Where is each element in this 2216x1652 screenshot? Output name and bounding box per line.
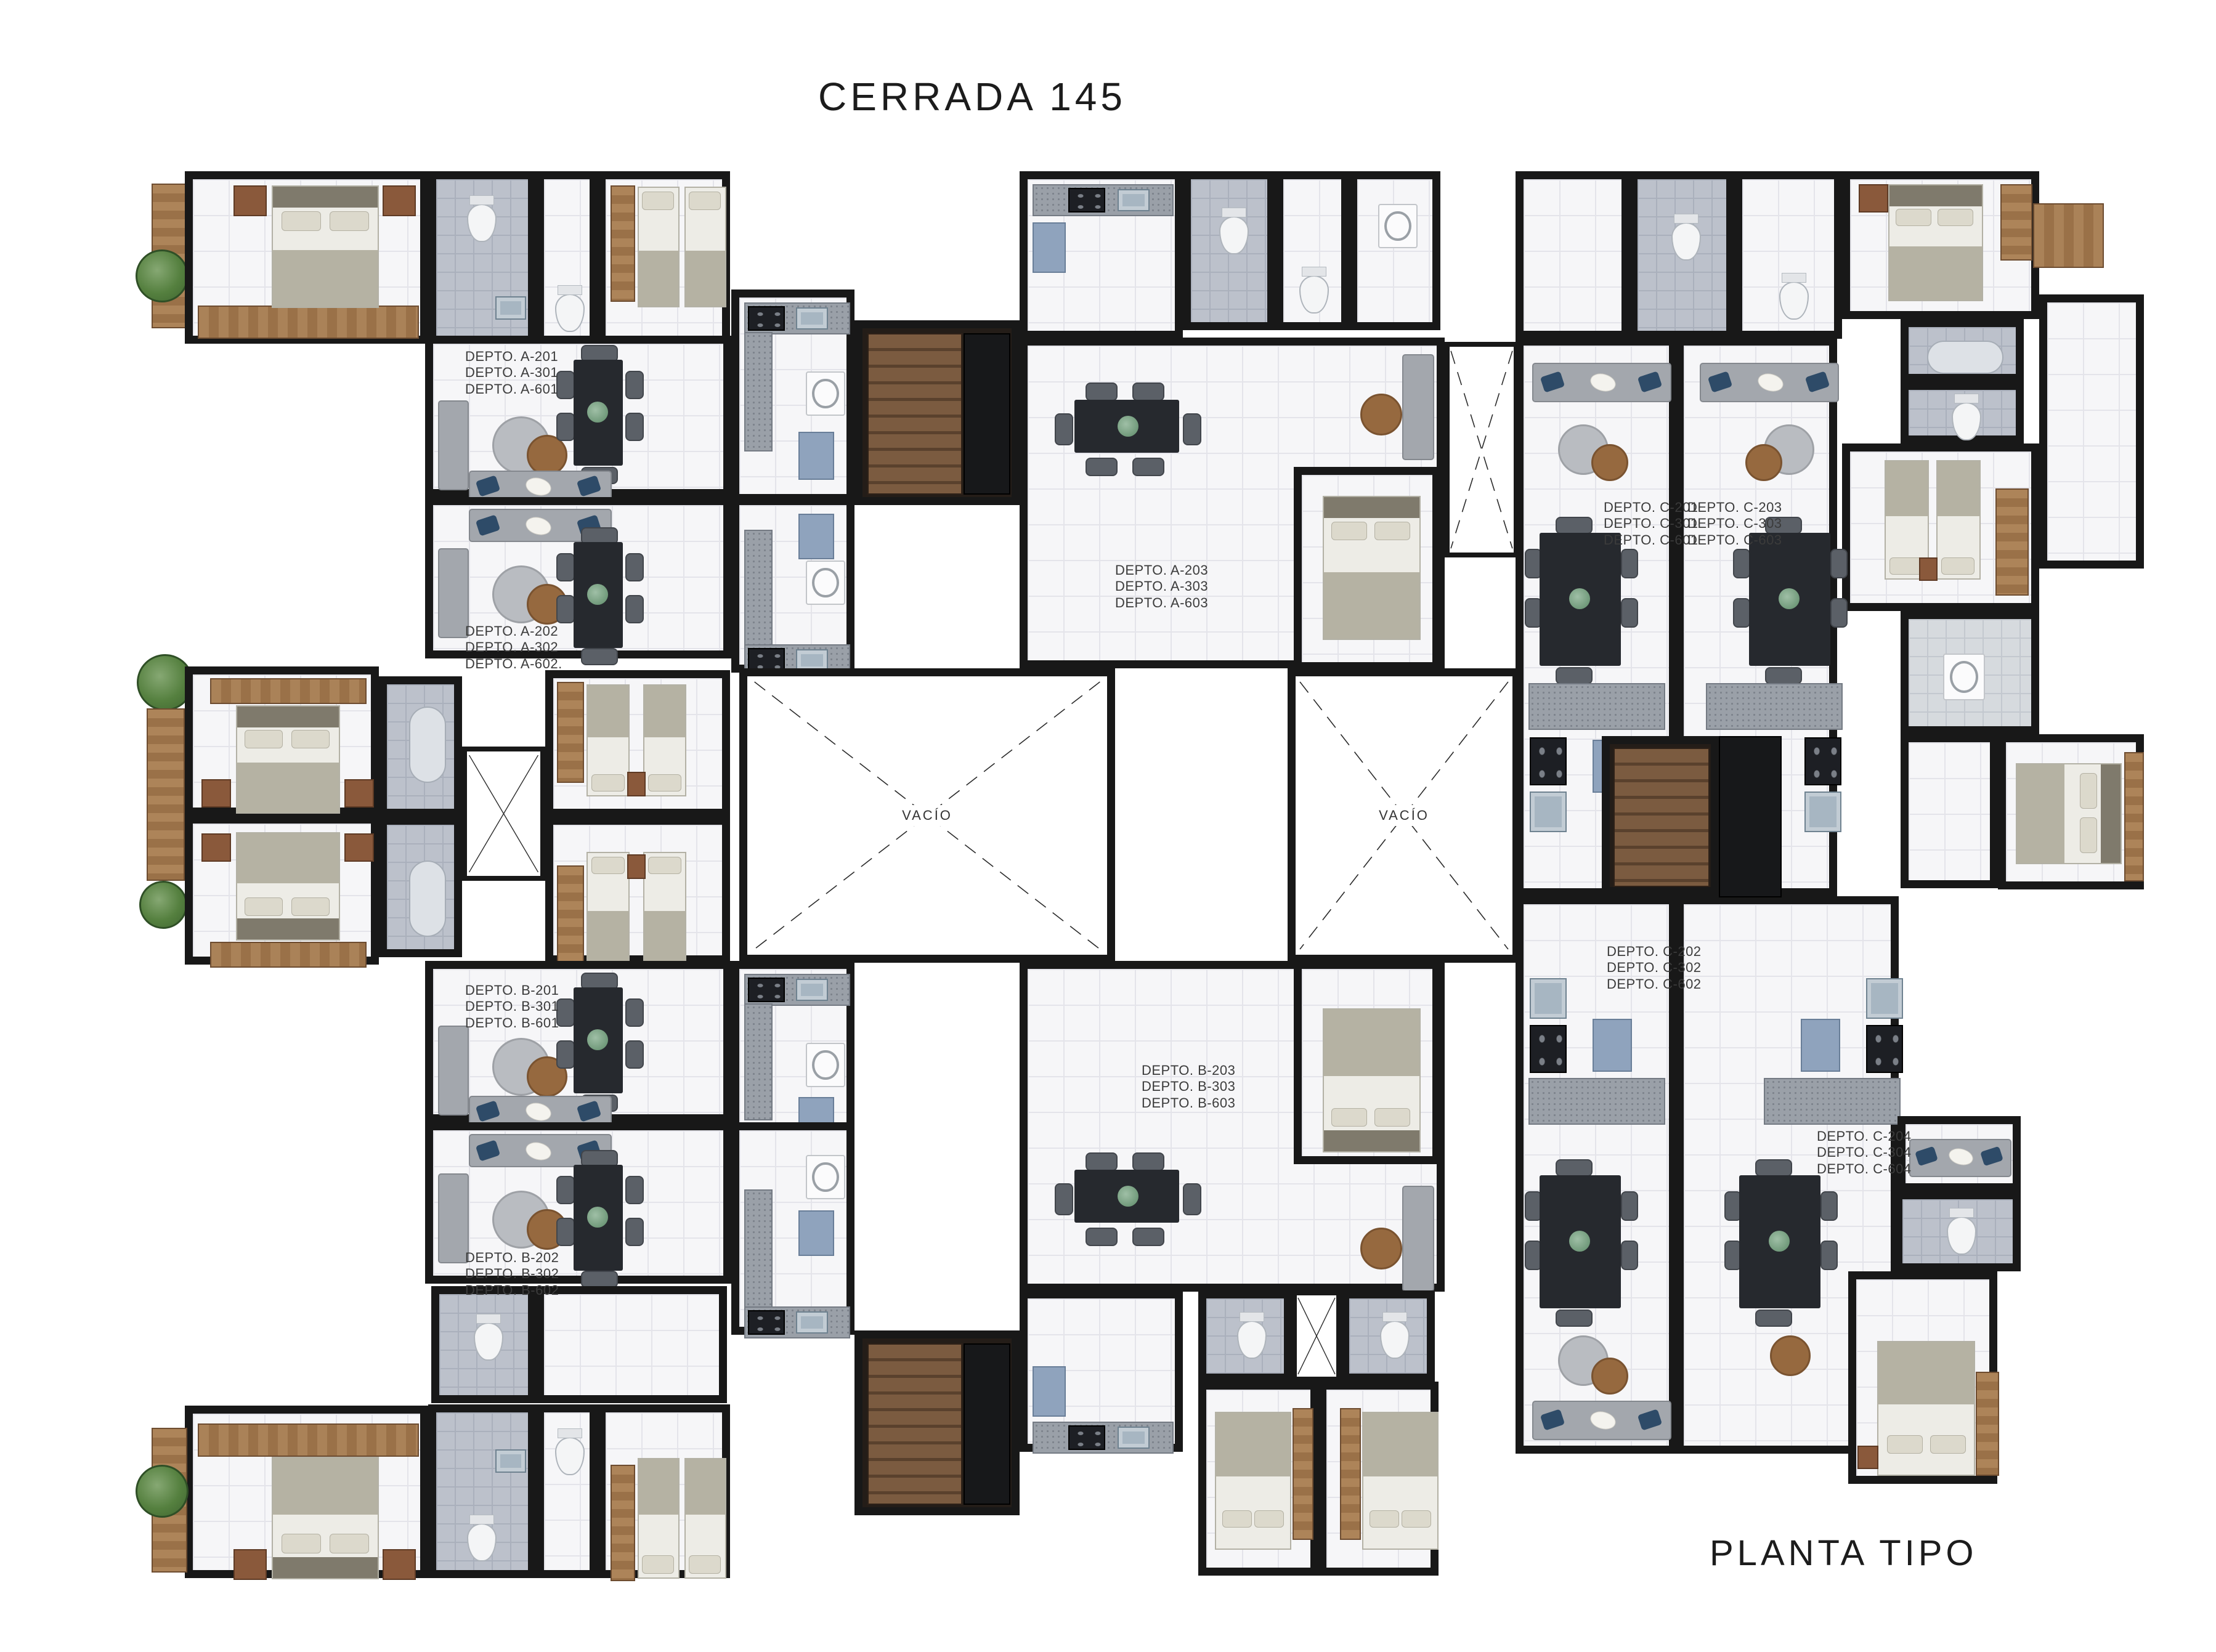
bed-headboard [273,187,378,208]
bed-pillow [642,1555,674,1574]
nightstand [201,779,231,808]
bed-pillow [648,774,681,792]
bed-blanket [237,833,339,883]
dining-table [1540,1175,1621,1308]
sofa-pillow [1756,371,1785,394]
sofa-pillow [524,514,553,538]
bathtub [409,860,446,937]
sofa-pillow [577,1100,601,1122]
bed [236,705,340,814]
toilet [1237,1321,1267,1359]
room-stair-core-c [1602,736,1719,895]
bed [1215,1412,1291,1550]
room-bath-c1 [1901,319,2024,382]
plant [136,249,189,302]
sofa-pillow [1540,371,1565,392]
bed-blanket [1878,1342,1974,1404]
bed-pillow [1331,522,1367,540]
toilet [1671,222,1701,261]
toilet [1952,402,1981,440]
kitchen-counter [744,332,773,451]
dining-chair [581,648,618,665]
dining-table [574,542,623,648]
bed [236,832,340,941]
dining-chair [625,1040,644,1069]
bed-pillow [1930,1435,1966,1454]
sofa-pillow [524,475,553,498]
bed-pillow [1938,209,1973,226]
kitchen-sink [796,307,828,330]
room-hall-bb [536,1404,598,1578]
wood-closet [2124,752,2144,881]
bed-pillow [282,211,321,231]
room-bath-c2 [1901,382,2024,443]
room-kitchen-a203 [1020,171,1183,339]
dining-chair [556,998,575,1027]
stove [1804,737,1841,785]
bed-blanket [1324,572,1419,639]
kitchen-counter [1528,683,1665,730]
unit-label-c203: DEPTO. C-203DEPTO. C-303DEPTO. C-603 [1687,500,1782,548]
wood-closet [1995,488,2029,596]
dining-table [574,987,623,1093]
nightstand [627,772,646,796]
single-bed [1936,460,1981,580]
sofa-pillow [1638,371,1662,392]
elevator [1719,736,1782,897]
bed [272,185,379,308]
dining-chair [1621,598,1638,628]
void-label: VACÍO [896,805,959,826]
kitchen-sink [796,979,828,1001]
room-bath-right [1894,1191,2021,1271]
room-bedroom-mid-a [185,666,379,816]
dining-chair [1830,598,1848,628]
dining-chair [1183,1183,1201,1215]
elevator-shaft [462,747,545,881]
bed-blanket [273,250,378,307]
sofa-pillow [1805,371,1830,392]
dining-table [1739,1175,1820,1308]
dining-chair [1086,458,1118,476]
room-bedroom-c-top [1842,171,2039,319]
unit-label-b201: DEPTO. B-201DEPTO. B-301DEPTO. B-601 [465,982,559,1031]
bed-blanket [2017,764,2064,863]
kitchen-sink [1804,792,1841,832]
cabinet [1033,1366,1066,1417]
dining-chair [581,1271,618,1288]
kitchen-counter [744,1189,773,1309]
bed-pillow [1254,1510,1284,1528]
dining-chair [556,553,575,581]
unit-label-a203: DEPTO. A-203DEPTO. A-303DEPTO. A-603 [1115,562,1208,611]
sofa-pillow [1588,371,1618,394]
sofa [1700,363,1839,402]
sofa [438,1026,469,1116]
cabinet [798,514,834,559]
stove [748,978,785,1002]
coffee-table [1770,1335,1811,1376]
coffee-table [1591,1358,1628,1395]
bed [1323,496,1421,640]
bed-blanket [1216,1413,1290,1476]
single-bed [643,852,686,964]
room-lounge-c204 [1897,1116,2021,1191]
elevator [964,1343,1010,1505]
dining-chair [556,1218,575,1246]
void-label: VACÍO [1373,805,1435,826]
wood-floor [198,1423,419,1457]
bed-pillow [689,1555,721,1574]
bed-headboard [1889,185,1982,206]
bed-blanket [1363,1413,1437,1476]
nightstand [627,854,646,879]
plant [139,881,187,929]
room-living-c202: DEPTO. C-202DEPTO. C-302DEPTO. C-602 [1516,896,1677,1454]
bed-pillow [330,211,369,231]
unit-label-c204: DEPTO. C-204DEPTO. C-304DEPTO. C-604 [1817,1128,1912,1177]
washer [1943,654,1985,700]
sofa-pillow [524,1100,553,1124]
dining-chair [1086,383,1118,401]
dining-chair [1556,1310,1593,1327]
unit-label-b203: DEPTO. B-203DEPTO. B-303DEPTO. B-603 [1142,1063,1235,1111]
bed [1362,1412,1439,1550]
room-bath-bc1 [1198,1290,1292,1382]
nightstand [1859,184,1888,213]
plant [136,1465,189,1518]
dining-chair [1621,1241,1638,1270]
room-bedroom-b203 [1294,961,1440,1164]
wood-closet [2000,184,2032,261]
wood-floor [210,942,367,968]
bathtub [409,707,446,783]
sofa-pillow [1638,1409,1662,1430]
coffee-table [1591,444,1628,481]
stove [1068,1425,1105,1450]
shaft-x-icon [1297,1295,1336,1377]
room-hall-right [1901,734,1998,888]
room-living-a201: DEPTO. A-201DEPTO. A-301DEPTO. A-601 [425,336,731,497]
dining-table [1749,533,1830,666]
dining-chair [1755,1310,1792,1327]
wood-floor [210,678,367,704]
room-bath-a203 [1183,171,1275,330]
stove [1866,1025,1903,1073]
bed-pillow [245,730,283,748]
dining-chair [1183,413,1201,445]
room-twin-mid-b [545,817,730,963]
bed-pillow [1896,209,1931,226]
bed-blanket [588,686,628,737]
dining-chair [1820,1191,1838,1221]
bed-blanket [644,686,685,737]
wood-closet [611,185,635,302]
kitchen-sink [1530,792,1567,832]
cabinet [1593,1019,1632,1072]
sofa-pillow [476,1100,500,1122]
single-bed [638,1458,680,1579]
room-bedroom-bc2 [1318,1382,1439,1576]
toilet [467,1523,497,1561]
bed-pillow [591,857,625,874]
room-kitchen-a202 [731,497,854,673]
unit-label-a202: DEPTO. A-202DEPTO. A-302DEPTO. A-602. [465,623,562,672]
bed-pillow [330,1534,369,1553]
bed-pillow [1941,557,1975,575]
cabinet [798,1210,834,1256]
duct-shaft [1292,1290,1341,1382]
void-vacio-1: VACÍO [739,668,1115,963]
dining-chair [625,595,644,623]
dining-chair [625,1218,644,1246]
room-twin-mid-a [545,670,730,817]
room-bedroom-bc1 [1198,1382,1318,1576]
single-bed [638,187,680,307]
room-stair-core-bottom [854,1330,1020,1515]
cabinet [1033,222,1066,273]
room-living-b202: DEPTO. B-202DEPTO. B-302DEPTO. B-602 [425,1122,731,1284]
kitchen-counter [1706,683,1843,730]
bed-pillow [282,1534,321,1553]
nightstand [383,1549,416,1580]
bed-blanket [273,1458,378,1515]
dining-chair [1621,1191,1638,1221]
dining-chair [625,413,644,441]
coffee-table [1745,444,1782,481]
bed [272,1457,379,1579]
washer [1378,204,1418,248]
dining-chair [1132,1228,1164,1246]
room-hall-b [536,1286,727,1403]
dining-chair [1733,549,1750,578]
bed [1888,184,1983,301]
sofa-pillow [524,1140,553,1163]
bed-blanket [1889,246,1982,300]
toilet [1219,216,1249,254]
washer [806,1155,845,1199]
room-master-bedroom-b [185,1406,428,1578]
toilet [555,294,585,332]
room-hall-a [536,171,598,345]
kitchen-counter [1528,1078,1665,1125]
dining-chair [625,371,644,399]
wood-floor [198,306,419,339]
balcony [147,708,185,881]
kitchen-sink [1866,978,1903,1019]
void-vacio-2: VACÍO [1288,668,1520,963]
room-bath-bc2 [1341,1290,1435,1382]
room-bedroom-c204 [1848,1271,1997,1484]
dining-chair [1086,1228,1118,1246]
sofa-pillow [476,1140,500,1161]
coffee-table [1360,394,1402,435]
bed-blanket [644,911,685,963]
dining-chair [1556,517,1593,534]
bed-blanket [1324,1010,1419,1076]
bed-pillow [648,857,681,874]
sofa-pillow [577,475,601,496]
bed-headboard [273,1557,378,1578]
toilet [1299,275,1329,314]
room-hall-c [1516,171,1630,339]
bed-blanket [237,763,339,812]
dining-chair [1755,1159,1792,1176]
dining-chair [556,1176,575,1204]
bed-pillow [1370,1510,1399,1528]
dining-chair [1733,598,1750,628]
room-bath-b [431,1286,536,1403]
bed-pillow [1402,1510,1431,1528]
floor-plan-canvas: CERRADA 145 PLANTA TIPO [0,0,2216,1652]
kitchen-sink [1118,189,1150,211]
dining-table [574,360,623,466]
room-wc-a203 [1275,171,1349,330]
nightstand [1857,1446,1878,1469]
dining-chair [1086,1152,1118,1171]
dining-table [1540,533,1621,666]
sofa [438,400,469,490]
unit-label-b202: DEPTO. B-202DEPTO. B-302DEPTO. B-602 [465,1250,559,1298]
room-laundry-a203 [1349,171,1440,330]
toilet [467,204,497,242]
sofa-pillow [1980,1146,2003,1167]
sofa [1532,1401,1671,1440]
nightstand [344,833,374,862]
single-bed [586,684,630,796]
dining-chair [1765,667,1802,684]
bed-pillow [689,192,721,210]
room-living-a202: DEPTO. A-202DEPTO. A-302DEPTO. A-602. [425,497,731,658]
wood-closet [611,1465,635,1581]
nightstand [233,185,267,216]
single-bed [684,187,726,307]
sofa [1909,1139,2011,1177]
sofa [1402,354,1434,460]
bed-pillow [1331,1108,1367,1127]
bed-blanket [1938,461,1979,516]
sofa-pillow [476,475,500,496]
room-kitchen-b203 [1020,1290,1183,1452]
stove [1530,737,1567,785]
room-living-b201: DEPTO. B-201DEPTO. B-301DEPTO. B-601 [425,961,731,1122]
dining-table [1074,400,1179,453]
single-bed [586,852,630,964]
kitchen-sink [796,1311,828,1334]
room-twin-bedroom-a [598,171,730,345]
shaft-x-icon [467,751,540,876]
dining-chair [1556,1159,1593,1176]
unit-label-a201: DEPTO. A-201DEPTO. A-301DEPTO. A-601 [465,349,558,397]
sofa-pillow [1947,1146,1975,1167]
room-kitchen-b202 [731,1122,854,1335]
page-title: CERRADA 145 [818,74,1126,119]
room-bathroom-b [428,1404,536,1578]
unit-label-c201: DEPTO. C-201DEPTO. C-301DEPTO. C-601 [1604,500,1699,548]
dining-chair [1132,1152,1164,1171]
stairs [867,333,962,495]
dining-chair [1621,549,1638,578]
stove [1530,1025,1567,1073]
stove [748,1310,785,1335]
room-bathroom-a [428,171,536,345]
bed-blanket [686,251,725,306]
room-bedroom-a203 [1294,467,1440,670]
wood-closet [557,865,584,966]
bed-pillow [642,192,674,210]
wood-closet [1293,1408,1313,1540]
dining-chair [556,413,575,441]
bed-pillow [1374,1108,1410,1127]
cabinet [1801,1019,1840,1072]
kitchen-counter [744,530,773,647]
bed [1323,1008,1421,1152]
bathtub [1927,341,2003,374]
bed-blanket [686,1459,725,1515]
bed-pillow [2080,817,2097,853]
bed-headboard [237,918,339,939]
bed-pillow [1887,1435,1923,1454]
dining-chair [625,553,644,581]
bed-blanket [639,1459,678,1515]
bed-headboard [237,707,339,727]
room-right-wing [2039,294,2144,569]
bed-headboard [1324,1130,1419,1151]
washer [806,561,845,605]
dining-table [574,1165,623,1271]
toilet [1947,1217,1976,1255]
shaft-x-icon [1450,347,1514,553]
bed-blanket [1886,461,1928,516]
room-master-bedroom-a [185,171,428,344]
bed-headboard [2101,764,2121,863]
bed-pillow [245,897,283,916]
plan-type-label: PLANTA TIPO [1710,1533,1978,1574]
nightstand [233,1549,267,1580]
room-bath-mid-b [379,817,462,957]
dining-chair [1132,458,1164,476]
room-stair-core-top [854,320,1020,505]
washer [806,371,845,416]
toilet [555,1437,585,1475]
sofa [1532,363,1671,402]
room-kitchen-a201 [731,290,854,502]
stove [748,306,785,331]
coffee-table [1360,1228,1402,1269]
bed-blanket [639,251,678,306]
room-wc-c [1734,171,1842,339]
bed-headboard [1324,497,1419,518]
room-bedroom-right [1998,734,2144,889]
nightstand [383,185,416,216]
stairs [867,1343,962,1505]
kitchen-sink [1118,1427,1150,1449]
room-twin-bedroom-c [1842,443,2039,611]
dining-table [1074,1170,1179,1223]
toilet [1779,281,1809,320]
bath-sink [495,1449,526,1473]
single-bed [684,1458,726,1579]
kitchen-counter [744,1003,773,1120]
sofa [438,1173,469,1263]
bed-pillow [1374,522,1410,540]
unit-label-c202: DEPTO. C-202DEPTO. C-302DEPTO. C-602 [1607,944,1702,992]
toilet [1380,1321,1410,1359]
dining-chair [1132,383,1164,401]
stairs [1613,748,1710,887]
room-twin-bedroom-b [598,1404,730,1578]
sofa-pillow [1540,1409,1565,1430]
